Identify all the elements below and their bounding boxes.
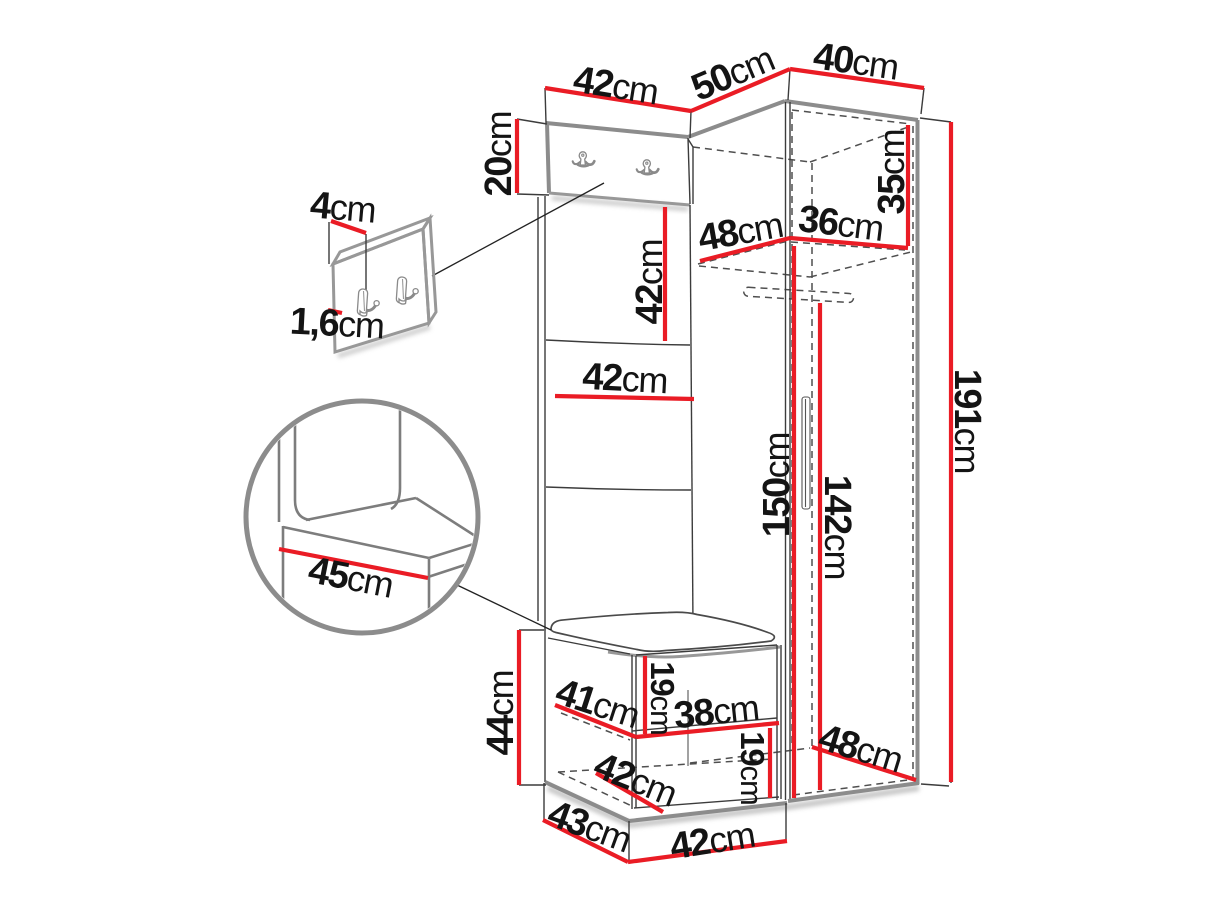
svg-text:1,6cm: 1,6cm <box>289 301 385 348</box>
svg-text:4cm: 4cm <box>309 184 378 232</box>
svg-text:42cm: 42cm <box>629 240 671 325</box>
svg-text:19cm: 19cm <box>734 731 771 805</box>
svg-text:191cm: 191cm <box>946 369 988 474</box>
svg-text:44cm: 44cm <box>480 671 522 756</box>
svg-text:42cm: 42cm <box>581 356 668 402</box>
svg-text:142cm: 142cm <box>816 475 858 580</box>
svg-text:20cm: 20cm <box>478 112 520 197</box>
svg-text:150cm: 150cm <box>756 433 798 538</box>
svg-text:35cm: 35cm <box>871 130 913 215</box>
